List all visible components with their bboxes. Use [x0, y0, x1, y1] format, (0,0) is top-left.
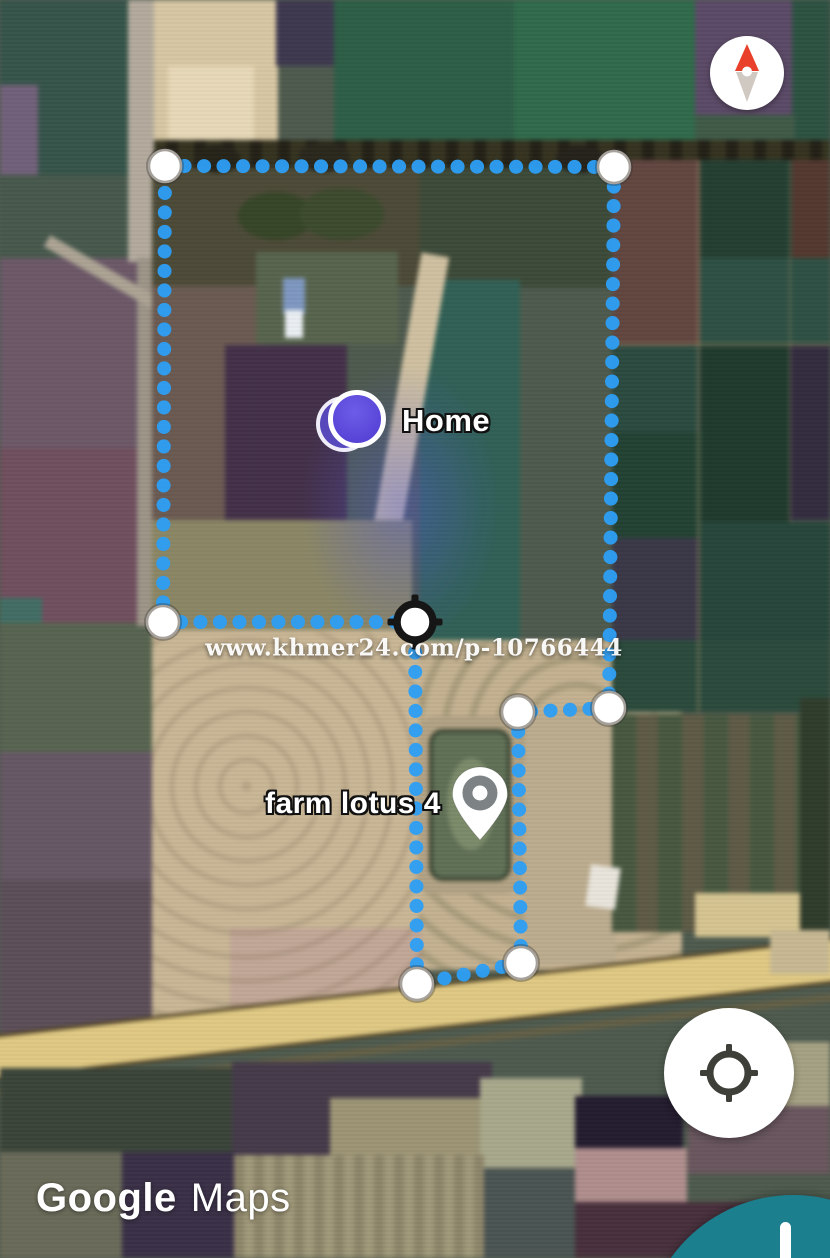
boundary-vertex-handle[interactable] — [146, 605, 181, 640]
my-location-icon — [700, 1044, 758, 1102]
boundary-dotted-edge — [609, 167, 614, 708]
directions-icon — [780, 1222, 791, 1258]
boundary-vertex-handle[interactable] — [148, 149, 183, 184]
boundary-dotted-edge — [163, 166, 165, 622]
boundary-vertex-handle[interactable] — [504, 946, 539, 981]
farm-place-marker[interactable]: farm lotus 4 — [265, 766, 509, 842]
brand-google: Google — [36, 1176, 177, 1221]
farm-marker-label: farm lotus 4 — [265, 787, 441, 821]
boundary-dotted-edge — [165, 166, 614, 167]
home-place-marker[interactable]: Home — [326, 390, 490, 452]
place-pin-icon[interactable] — [451, 766, 509, 842]
compass-icon — [724, 42, 770, 104]
home-marker-circle — [328, 390, 386, 448]
boundary-vertex-handle[interactable] — [501, 695, 536, 730]
compass-button[interactable] — [710, 36, 784, 110]
boundary-vertex-handle[interactable] — [400, 967, 435, 1002]
boundary-dotted-edge — [518, 712, 521, 963]
google-maps-satellite-view[interactable]: www.khmer24.com/p-10766444 Home farm lot… — [0, 0, 830, 1258]
my-location-button[interactable] — [664, 1008, 794, 1138]
watermark-text: www.khmer24.com/p-10766444 — [205, 635, 623, 662]
google-maps-branding: Google Maps — [36, 1176, 291, 1221]
home-marker-label: Home — [402, 403, 490, 439]
boundary-vertex-handle[interactable] — [597, 150, 632, 185]
home-marker-dot[interactable] — [326, 390, 388, 452]
brand-maps: Maps — [191, 1176, 291, 1221]
boundary-vertex-handle[interactable] — [592, 691, 627, 726]
